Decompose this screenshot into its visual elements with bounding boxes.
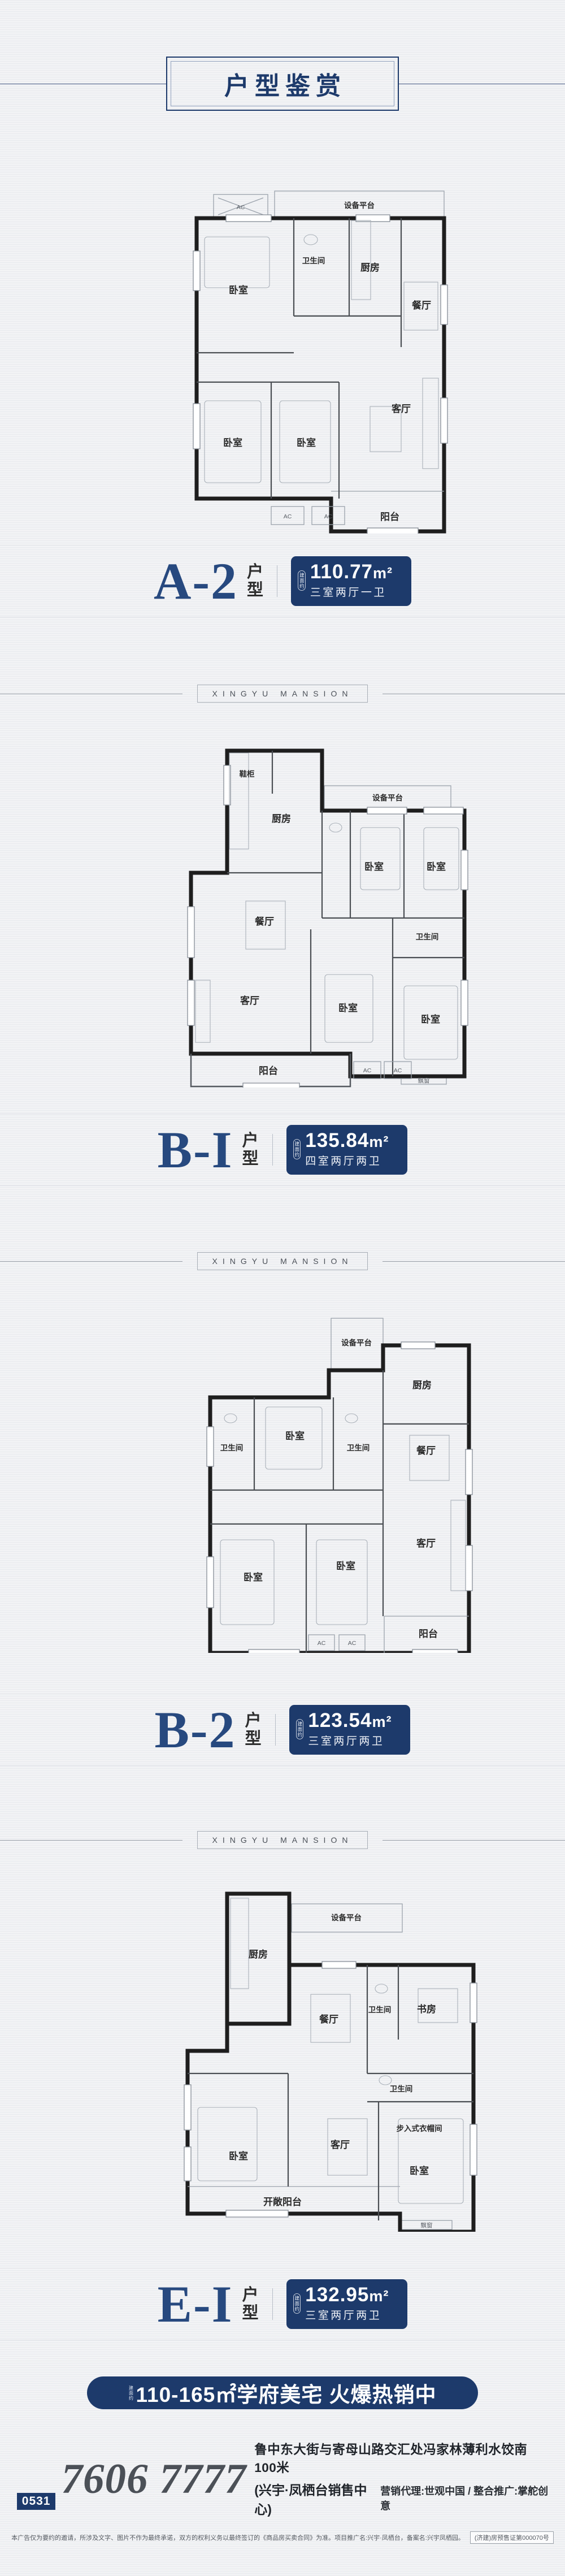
room-label: AC [284,513,292,520]
room-label: 卧室 [244,1571,263,1583]
divider-line-right [383,1261,565,1262]
promo-banner: 建面约 110-165㎡学府美宅 火爆热销中 [87,2376,478,2409]
floorplan-a2: 设备平台 AC 卧室 卫生间 厨房 餐厅 客厅 卧室 卧室 阳台 AC AC [85,183,480,534]
plan-label-a2: A-2 户型 建面约 110.77m² 三室两厅一卫 [0,545,565,617]
room-label: 设备平台 [344,201,375,210]
room-label: 卧室 [364,861,384,872]
floorplan-e1: 设备平台 厨房 餐厅 卫生间 书房 卫生间 步入式衣帽间 卧室 客厅 卧室 开敞… [85,1881,480,2232]
room-label: 餐厅 [255,916,274,927]
room-label: 书房 [417,2003,436,2015]
rooms-config: 四室两厅两卫 [305,1153,389,1168]
area-badge: 建面约 123.54m² 三室两厅两卫 [289,1705,411,1755]
floorplan-e1-svg: 设备平台 厨房 餐厅 卫生间 书房 卫生间 步入式衣帽间 卧室 客厅 卧室 开敞… [85,1881,480,2232]
room-label: 卧室 [421,1014,440,1025]
label-divider [277,565,277,597]
room-label: 客厅 [416,1538,436,1549]
area-unit: m² [369,1133,389,1150]
plan-letter: B-I [158,1124,233,1176]
room-label: 卧室 [285,1430,305,1441]
plan-label-e1: E-I 户型 建面约 132.95m² 三室两厅两卫 [0,2268,565,2340]
area-value: 135.84 [305,1129,369,1151]
plan-label-b1: B-I 户型 建面约 135.84m² 四室两厅两卫 [0,1114,565,1185]
room-label: 卫生间 [368,2005,392,2014]
plan-suffix: 户型 [245,1712,264,1748]
divider-line-left [0,1261,182,1262]
room-label: 客厅 [240,995,259,1006]
divider-line-right [383,1840,565,1841]
room-label: 阳台 [419,1628,438,1639]
title-box-inner: 户型鉴赏 [171,61,394,106]
plan-suffix: 户型 [242,1132,260,1168]
rooms-config: 三室两厅两卫 [305,2307,389,2322]
disclaimer-row: 本广告仅为要约的邀请，所涉及文字、图片不作为最终承诺，双方的权利义务以最终签订的… [0,2531,565,2544]
room-label: 设备平台 [331,1913,362,1922]
room-label: AC [348,1640,357,1647]
area-prefix: 建面约 [293,1139,301,1160]
room-label: 客厅 [391,403,411,414]
room-label: 鞋柜 [240,769,255,778]
area-prefix: 建面约 [296,1719,304,1740]
page-title: 户型鉴赏 [219,66,346,102]
section-rule [0,1765,565,1766]
section-rule [0,1185,565,1186]
header: 户型鉴赏 [0,57,565,111]
rooms-config: 三室两厅两卫 [308,1733,392,1748]
room-label: 卧室 [336,1560,355,1571]
area-unit: m² [372,1713,392,1730]
room-label: 厨房 [412,1379,432,1391]
room-label: 阳台 [259,1065,278,1076]
label-divider [275,1714,276,1746]
plan-letter: B-2 [155,1704,236,1756]
brand-divider: XINGYU MANSION [0,1830,565,1850]
room-label: 卧室 [410,2165,429,2176]
footer: 0531 7606 7777 鲁中东大街与寄母山路交汇处冯家林薄利水饺南100米… [0,2440,565,2518]
presale-license: (济建)房预售证第000070号 [470,2531,554,2544]
section-rule [0,617,565,617]
brand-name: XINGYU MANSION [197,1252,368,1270]
room-label: 飘窗 [418,1077,430,1084]
room-label: 设备平台 [372,793,403,802]
address-line1: 鲁中东大街与寄母山路交汇处冯家林薄利水饺南100米 [254,2440,548,2476]
section-rule [0,2340,565,2340]
area-prefix: 建面约 [293,2293,301,2314]
room-label: 卫生间 [220,1443,244,1452]
floorplan-b1: 鞋柜 厨房 设备平台 卧室 卧室 餐厅 卫生间 客厅 卧室 卧室 阳台 飘窗 A… [85,737,480,1088]
room-label: 厨房 [272,813,291,824]
room-label: 餐厅 [416,1445,436,1456]
plan-label-b2: B-2 户型 建面约 123.54m² 三室两厅两卫 [0,1694,565,1765]
room-label: 卧室 [297,437,316,448]
header-line-left [0,84,166,84]
floorplan-a2-svg: 设备平台 AC 卧室 卫生间 厨房 餐厅 客厅 卧室 卧室 阳台 AC AC [85,183,480,534]
divider-line-left [0,1840,182,1841]
plan-suffix: 户型 [247,563,266,600]
room-label: AC [318,1640,326,1647]
room-label: 厨房 [360,262,380,273]
room-label: 卫生间 [302,256,325,265]
floorplan-b2: 设备平台 厨房 卫生间 卧室 卫生间 餐厅 客厅 卧室 卧室 阳台 AC AC [85,1302,480,1653]
room-label: 卧室 [338,1002,358,1014]
disclaimer-text: 本广告仅为要约的邀请，所涉及文字、图片不作为最终承诺，双方的权利义务以最终签订的… [11,2533,464,2542]
brand-divider: XINGYU MANSION [0,684,565,703]
room-label: 卫生间 [390,2084,413,2093]
rooms-config: 三室两厅一卫 [310,584,393,599]
room-label: 客厅 [330,2139,350,2150]
title-box: 户型鉴赏 [166,57,399,111]
brand-name: XINGYU MANSION [197,685,368,703]
room-label: 卧室 [229,2150,248,2162]
label-divider [272,2288,273,2320]
divider-line-right [383,694,565,694]
room-label: AC [394,1067,402,1074]
room-label: AC [237,204,245,211]
room-label: 开敞阳台 [263,2196,302,2207]
area-value: 132.95 [305,2284,369,2306]
area-badge: 建面约 135.84m² 四室两厅两卫 [286,1125,408,1175]
floorplan-b1-svg: 鞋柜 厨房 设备平台 卧室 卧室 餐厅 卫生间 客厅 卧室 卧室 阳台 飘窗 A… [85,737,480,1088]
plan-letter: E-I [158,2278,233,2330]
room-label: 厨房 [249,1949,268,1960]
area-prefix: 建面约 [298,570,306,591]
banner-area-prefix: 建面约 [128,2385,133,2401]
room-label: AC [363,1067,372,1074]
room-label: 设备平台 [341,1338,372,1347]
room-label: 餐厅 [412,300,431,311]
area-unit: m² [369,2288,389,2305]
room-label: 飘窗 [421,2222,433,2229]
room-label: 阳台 [380,511,399,522]
area-value: 123.54 [308,1709,372,1731]
room-label: 餐厅 [319,2014,338,2025]
plan-letter: A-2 [154,555,238,607]
room-label: 卧室 [229,284,248,296]
area-value: 110.77 [310,561,373,583]
floorplan-b2-svg: 设备平台 厨房 卫生间 卧室 卫生间 餐厅 客厅 卧室 卧室 阳台 AC AC [85,1302,480,1653]
room-label: AC [324,513,333,520]
room-label: 卧室 [223,437,242,448]
plan-suffix: 户型 [242,2286,260,2323]
agency-info: 营销代理:世观中国 / 整合推广:掌舵创意 [380,2483,548,2513]
brand-name: XINGYU MANSION [197,1831,368,1849]
divider-line-left [0,694,182,694]
room-label: 卫生间 [416,932,439,941]
phone-area-code: 0531 [17,2493,56,2510]
sales-center: (兴宇·凤栖台销售中心) [254,2479,377,2518]
label-divider [272,1134,273,1166]
room-label: 卫生间 [347,1443,370,1452]
area-unit: m² [373,565,393,582]
room-label: 步入式衣帽间 [397,2124,442,2133]
phone-number: 7606 7777 [61,2458,246,2500]
banner-text: 110-165㎡学府美宅 火爆热销中 [136,2378,436,2408]
header-line-right [399,84,565,84]
area-badge: 建面约 110.77m² 三室两厅一卫 [291,556,411,607]
brand-divider: XINGYU MANSION [0,1252,565,1271]
area-badge: 建面约 132.95m² 三室两厅两卫 [286,2279,408,2330]
address-block: 鲁中东大街与寄母山路交汇处冯家林薄利水饺南100米 (兴宇·凤栖台销售中心) 营… [254,2440,548,2518]
room-label: 卧室 [427,861,446,872]
